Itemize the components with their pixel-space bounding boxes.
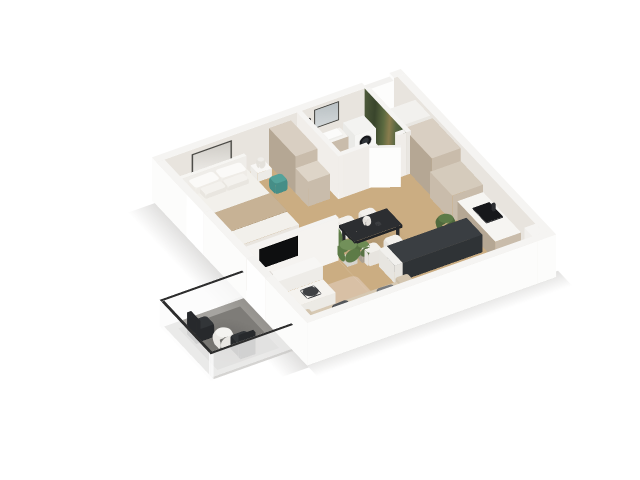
bathroom-door-south bbox=[369, 148, 401, 189]
floorplan-3d-scene bbox=[128, 97, 579, 380]
east-corner-pillar-south bbox=[537, 234, 556, 284]
kitchen-faucet-south bbox=[493, 204, 495, 212]
floorplan-image bbox=[0, 0, 640, 480]
